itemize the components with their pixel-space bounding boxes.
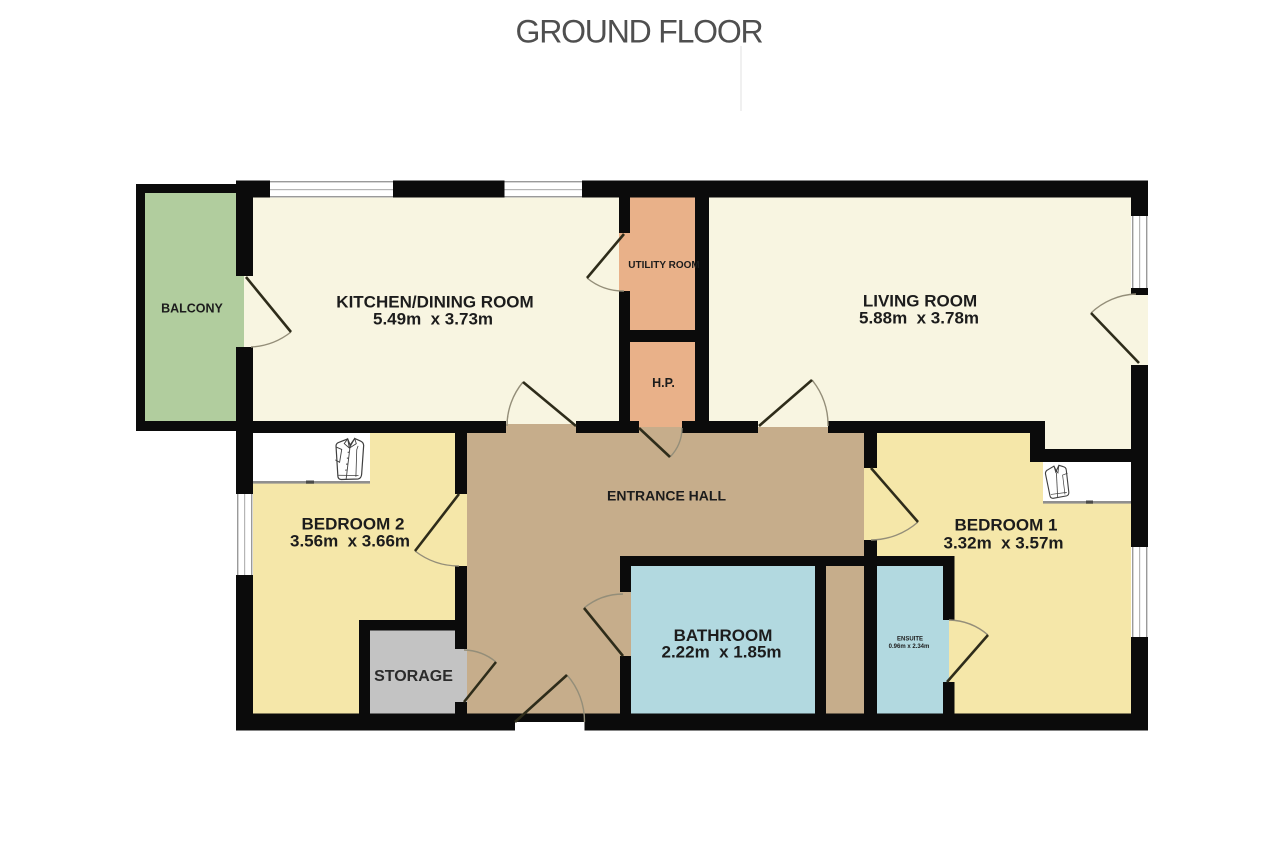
svg-text:UTILITY ROOM: UTILITY ROOM bbox=[628, 260, 699, 271]
svg-text:GROUND FLOOR: GROUND FLOOR bbox=[516, 14, 763, 50]
svg-text:5.88m x 3.78m: 5.88m x 3.78m bbox=[859, 309, 979, 328]
svg-text:ENTRANCE HALL: ENTRANCE HALL bbox=[607, 488, 726, 504]
svg-text:BEDROOM 1: BEDROOM 1 bbox=[955, 516, 1058, 535]
svg-text:ENSUITE: ENSUITE bbox=[897, 637, 923, 643]
svg-text:STORAGE: STORAGE bbox=[374, 668, 453, 685]
svg-text:H.P.: H.P. bbox=[652, 376, 675, 390]
svg-text:5.49m x 3.73m: 5.49m x 3.73m bbox=[373, 310, 493, 329]
svg-text:3.56m x 3.66m: 3.56m x 3.66m bbox=[290, 532, 410, 551]
svg-text:0.96m x 2.34m: 0.96m x 2.34m bbox=[889, 644, 930, 650]
svg-text:BALCONY: BALCONY bbox=[161, 302, 223, 316]
svg-text:3.32m x 3.57m: 3.32m x 3.57m bbox=[943, 534, 1063, 553]
svg-text:2.22m x 1.85m: 2.22m x 1.85m bbox=[661, 643, 781, 662]
